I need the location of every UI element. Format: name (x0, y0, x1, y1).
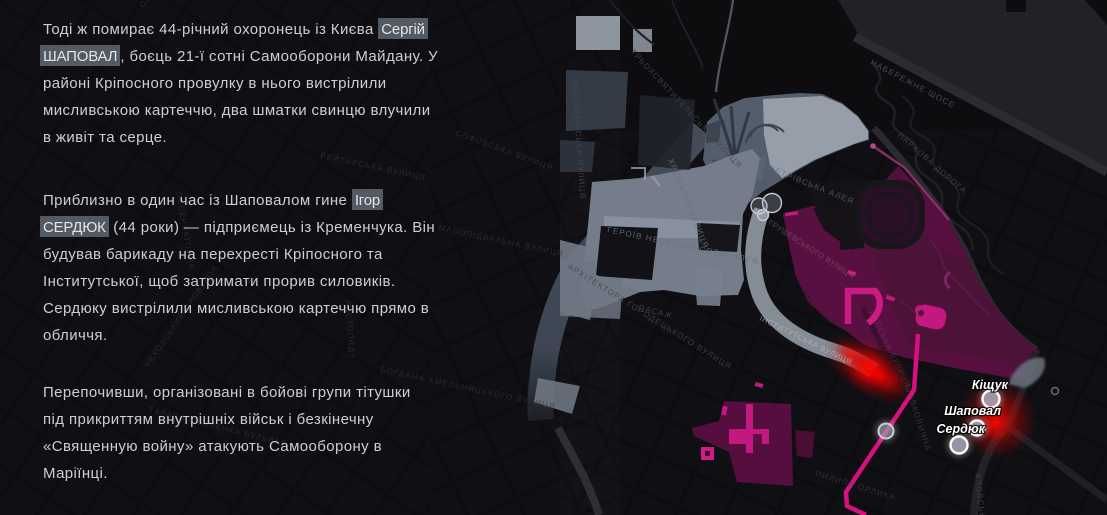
svg-text:Сердюк: Сердюк (937, 422, 986, 436)
svg-text:Шаповал: Шаповал (944, 404, 1001, 418)
svg-text:Кіщук: Кіщук (972, 378, 1009, 392)
